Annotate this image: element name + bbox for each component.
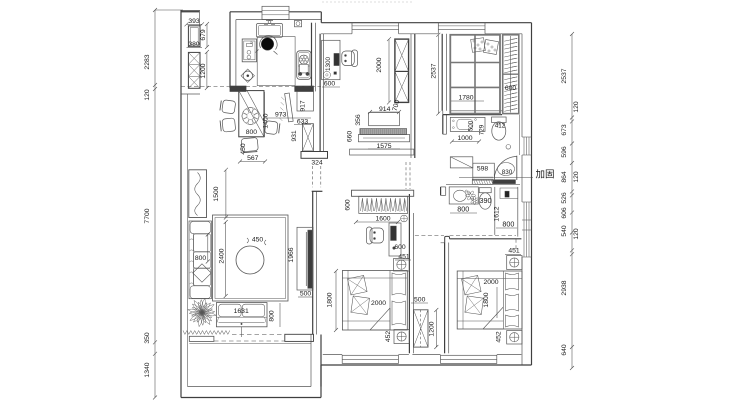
svg-text:500: 500 bbox=[414, 297, 426, 304]
svg-text:1200: 1200 bbox=[429, 321, 436, 336]
svg-text:1200: 1200 bbox=[200, 63, 207, 78]
svg-text:2537: 2537 bbox=[561, 68, 568, 83]
svg-text:729: 729 bbox=[479, 124, 486, 135]
svg-text:7700: 7700 bbox=[144, 208, 151, 223]
svg-text:加固: 加固 bbox=[535, 170, 554, 181]
svg-text:800: 800 bbox=[269, 310, 276, 322]
svg-text:567: 567 bbox=[247, 155, 259, 162]
svg-text:830: 830 bbox=[502, 169, 513, 176]
svg-text:973: 973 bbox=[275, 112, 287, 119]
svg-text:2000: 2000 bbox=[376, 57, 383, 72]
svg-text:393: 393 bbox=[188, 18, 200, 25]
svg-text:596: 596 bbox=[561, 146, 568, 158]
svg-text:120: 120 bbox=[573, 228, 580, 240]
svg-text:600: 600 bbox=[394, 244, 406, 251]
svg-text:679: 679 bbox=[200, 29, 207, 41]
svg-text:800: 800 bbox=[502, 220, 514, 229]
svg-text:2400: 2400 bbox=[219, 248, 226, 263]
svg-text:1800: 1800 bbox=[326, 292, 333, 307]
svg-text:640: 640 bbox=[561, 344, 568, 356]
svg-text:1800: 1800 bbox=[483, 292, 490, 307]
svg-text:600: 600 bbox=[324, 81, 336, 88]
svg-text:540: 540 bbox=[561, 225, 568, 237]
svg-text:451: 451 bbox=[508, 248, 520, 255]
svg-text:324: 324 bbox=[311, 160, 323, 167]
svg-text:451: 451 bbox=[398, 254, 410, 261]
svg-text:917: 917 bbox=[300, 100, 307, 112]
svg-text:1340: 1340 bbox=[144, 362, 151, 377]
svg-text:390: 390 bbox=[480, 196, 492, 205]
svg-text:2537: 2537 bbox=[430, 63, 437, 78]
svg-text:120: 120 bbox=[573, 171, 580, 183]
svg-text:500: 500 bbox=[300, 291, 312, 298]
svg-text:931: 931 bbox=[291, 130, 298, 142]
svg-text:452: 452 bbox=[385, 331, 392, 343]
svg-text:864: 864 bbox=[561, 171, 568, 183]
svg-text:1631: 1631 bbox=[234, 308, 249, 315]
svg-text:800: 800 bbox=[457, 205, 469, 214]
svg-text:500: 500 bbox=[467, 120, 474, 131]
svg-text:660: 660 bbox=[347, 131, 354, 143]
svg-text:2000: 2000 bbox=[483, 279, 498, 286]
svg-text:800: 800 bbox=[246, 129, 258, 136]
svg-text:450: 450 bbox=[240, 143, 247, 155]
svg-text:1500: 1500 bbox=[213, 186, 220, 201]
svg-text:1600: 1600 bbox=[375, 216, 390, 223]
svg-text:450: 450 bbox=[252, 237, 264, 244]
svg-text:606: 606 bbox=[561, 207, 568, 219]
svg-text:673: 673 bbox=[561, 124, 568, 136]
svg-text:600: 600 bbox=[345, 199, 352, 211]
svg-text:598: 598 bbox=[477, 166, 489, 173]
svg-text:1000: 1000 bbox=[457, 135, 472, 142]
svg-text:452: 452 bbox=[496, 331, 503, 343]
svg-text:120: 120 bbox=[144, 89, 151, 101]
svg-text:1300: 1300 bbox=[325, 57, 332, 72]
svg-text:412: 412 bbox=[495, 123, 506, 130]
svg-text:350: 350 bbox=[144, 332, 151, 344]
svg-text:2283: 2283 bbox=[144, 54, 151, 69]
svg-text:120: 120 bbox=[573, 101, 580, 113]
svg-text:2938: 2938 bbox=[561, 280, 568, 295]
svg-text:1400: 1400 bbox=[262, 113, 269, 128]
svg-text:2000: 2000 bbox=[371, 300, 386, 307]
svg-text:356: 356 bbox=[355, 114, 362, 126]
svg-text:1966: 1966 bbox=[288, 247, 295, 262]
svg-text:1780: 1780 bbox=[458, 95, 473, 102]
svg-text:600: 600 bbox=[505, 85, 517, 92]
svg-text:1612: 1612 bbox=[494, 206, 501, 221]
svg-text:526: 526 bbox=[561, 192, 568, 204]
svg-text:800: 800 bbox=[195, 255, 207, 262]
